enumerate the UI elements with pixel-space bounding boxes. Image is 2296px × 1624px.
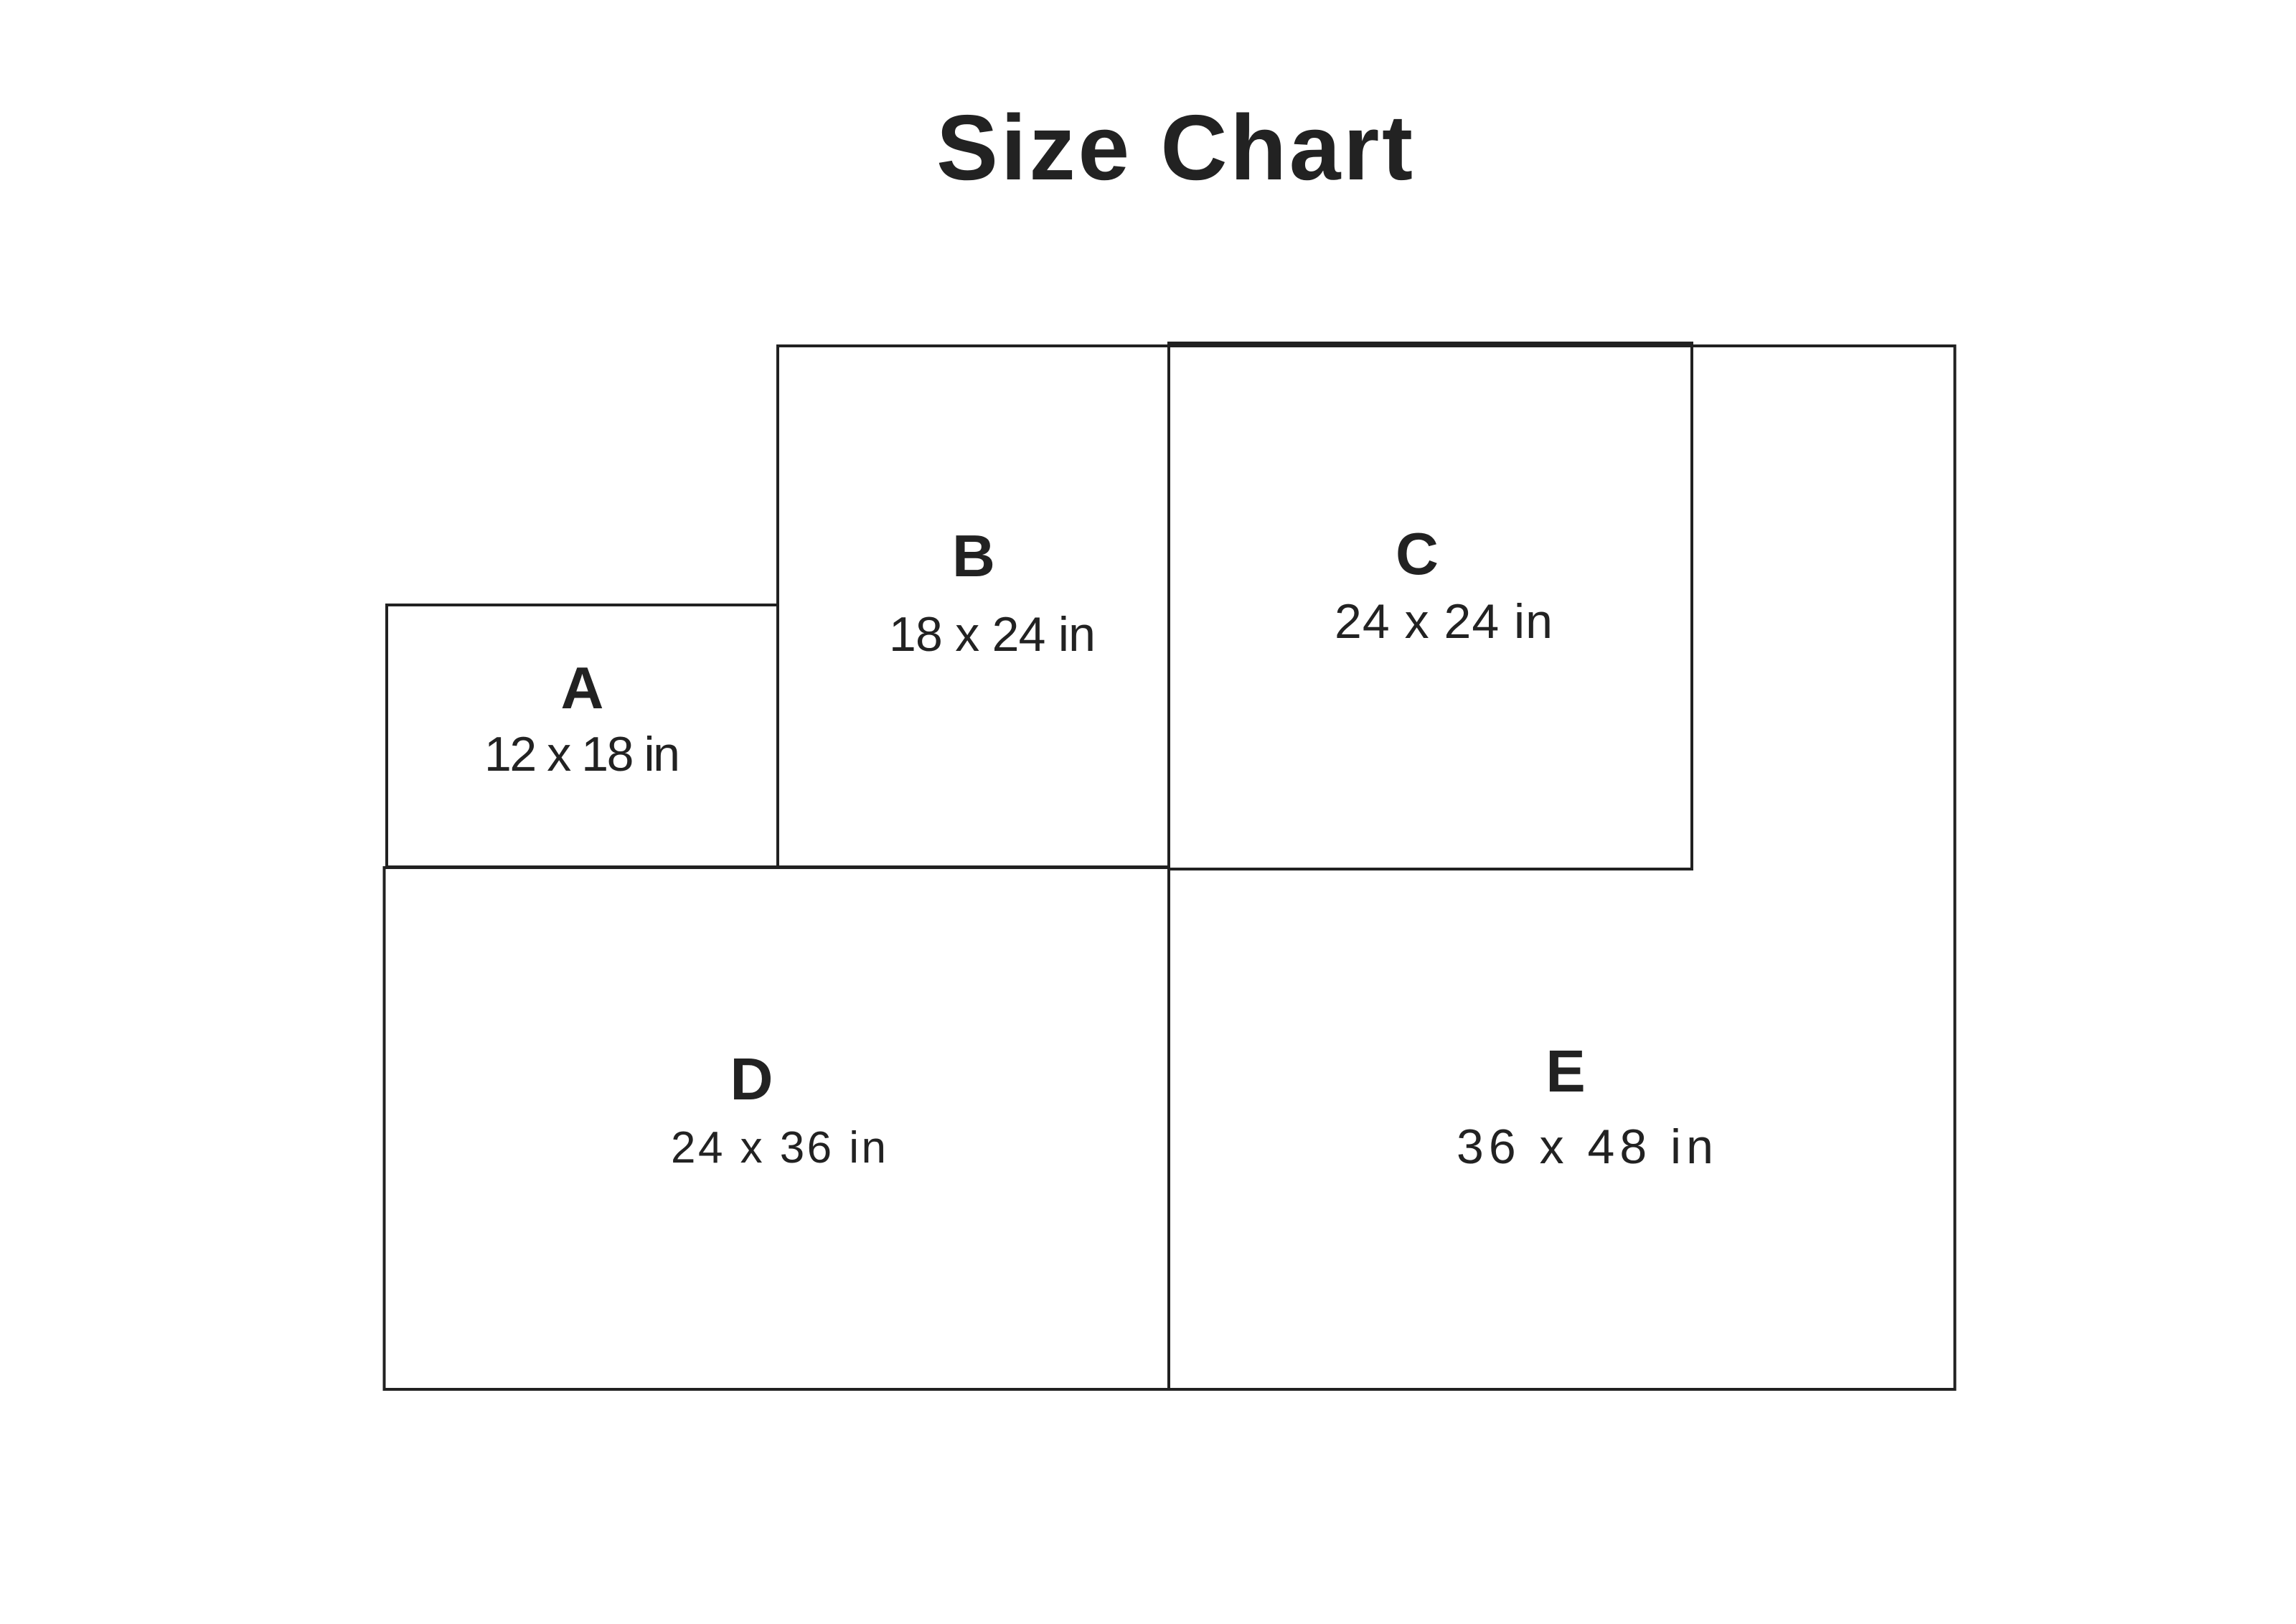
svg-text:D: D bbox=[730, 1046, 773, 1112]
svg-text:C: C bbox=[1396, 520, 1439, 587]
svg-text:E: E bbox=[1545, 1038, 1585, 1104]
svg-text:A: A bbox=[561, 654, 604, 721]
svg-text:B: B bbox=[952, 522, 995, 589]
svg-text:18 x 24 in: 18 x 24 in bbox=[889, 607, 1096, 662]
svg-text:12 x 18 in: 12 x 18 in bbox=[484, 727, 680, 782]
svg-text:24 x 24 in: 24 x 24 in bbox=[1335, 594, 1553, 649]
